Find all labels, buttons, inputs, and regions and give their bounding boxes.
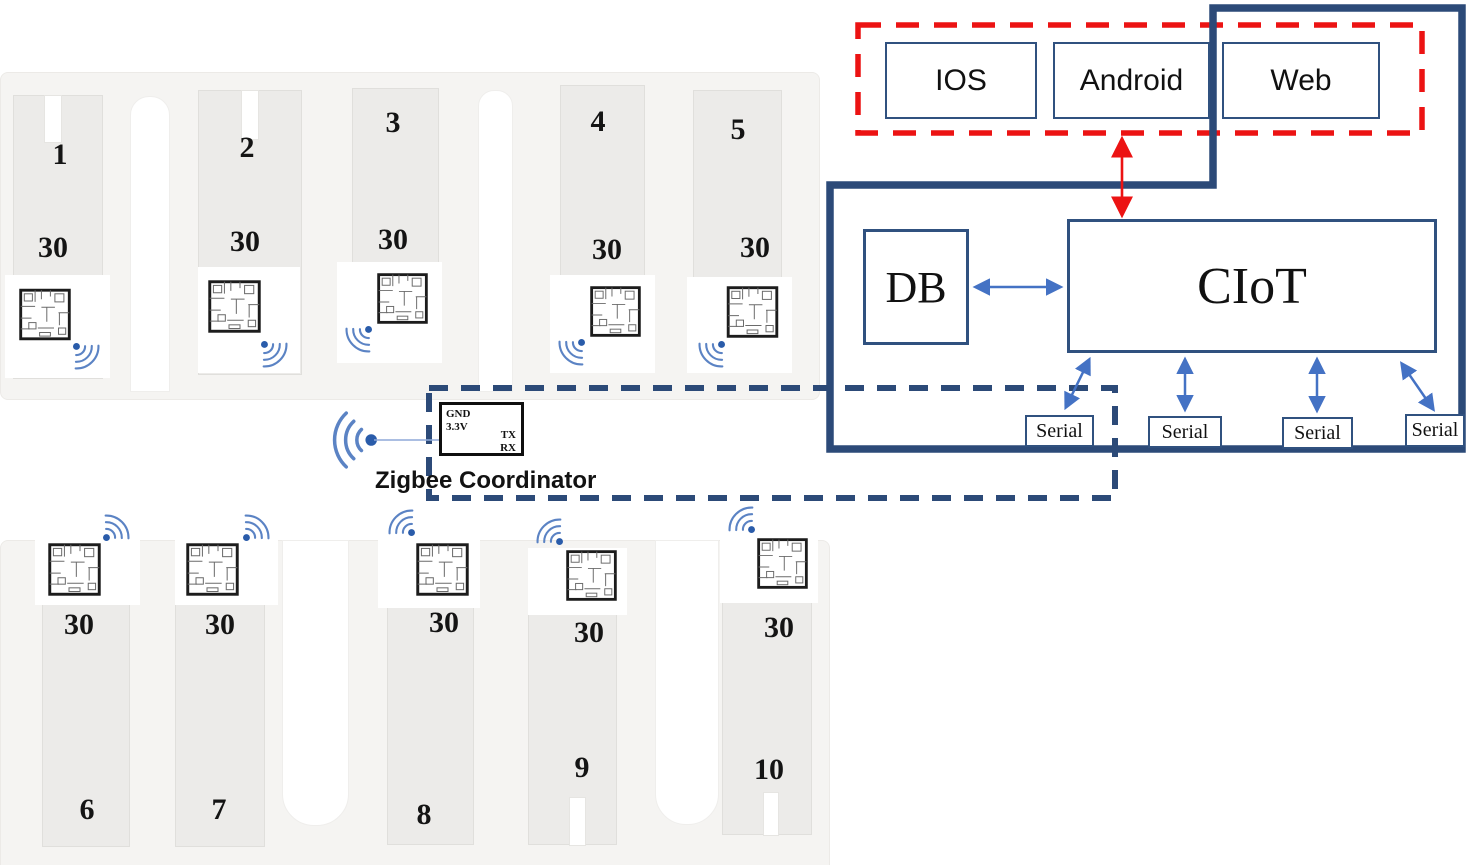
db-box: DB	[863, 229, 969, 345]
floorplan-icon	[415, 542, 470, 597]
building-8-floors: 30	[419, 605, 469, 641]
serial-label: Serial	[1294, 422, 1341, 445]
serial-box-4: Serial	[1405, 414, 1465, 447]
floorplan-icon	[588, 285, 643, 338]
building-10-number: 10	[744, 752, 794, 788]
building-4-floors: 30	[582, 232, 632, 268]
building-5-floors: 30	[730, 230, 780, 266]
building-7-number: 7	[194, 792, 244, 828]
building-2-floors: 30	[220, 224, 270, 260]
building-notch	[569, 797, 586, 846]
road	[130, 96, 170, 392]
android-box: Android	[1053, 42, 1210, 119]
wifi-signal-icon	[333, 317, 381, 365]
db-label: DB	[885, 262, 946, 313]
wifi-signal-icon	[94, 502, 142, 550]
building-notch	[44, 95, 62, 143]
serial-box-3: Serial	[1282, 417, 1353, 449]
road	[655, 540, 719, 825]
building-6-number: 6	[62, 792, 112, 828]
ciot-label: CIoT	[1197, 257, 1307, 316]
building-10-floors: 30	[754, 610, 804, 646]
building-6-floors: 30	[54, 607, 104, 643]
serial-box-1: Serial	[1025, 415, 1094, 447]
diagram-canvas: 1 30 2 30 3 30 4 30 5 30 30 6 30 7 30 8 …	[0, 0, 1477, 865]
wifi-signal-icon	[686, 332, 734, 380]
building-1-number: 1	[35, 137, 85, 173]
wifi-signal-icon	[546, 330, 594, 378]
floorplan-icon	[755, 537, 810, 590]
zigbee-coordinator-module: GND 3.3V TX RX	[439, 402, 524, 456]
web-box: Web	[1222, 42, 1380, 119]
wifi-signal-icon	[234, 502, 282, 550]
serial-label: Serial	[1412, 419, 1459, 442]
ios-label: IOS	[935, 64, 987, 98]
serial-box-2: Serial	[1148, 416, 1222, 448]
wifi-signal-icon	[524, 506, 572, 554]
pin-tx-label: TX	[501, 429, 516, 441]
floorplan-icon	[47, 542, 102, 597]
ios-box: IOS	[885, 42, 1037, 119]
building-3-number: 3	[368, 105, 418, 141]
floorplan-icon	[185, 542, 240, 597]
road	[478, 90, 513, 392]
floorplan-icon	[565, 548, 618, 603]
building-5-number: 5	[713, 112, 763, 148]
floorplan-icon	[375, 272, 430, 325]
wifi-signal-icon	[64, 334, 112, 382]
wifi-signal-icon	[304, 400, 384, 480]
serial-label: Serial	[1162, 421, 1209, 444]
pin-rx-label: RX	[500, 442, 516, 454]
floorplan-icon	[207, 278, 262, 335]
web-label: Web	[1270, 64, 1331, 98]
pin-power-label: 3.3V	[446, 421, 468, 433]
ciot-box: CIoT	[1067, 219, 1437, 353]
wifi-signal-icon	[376, 497, 424, 545]
zigbee-coordinator-label: Zigbee Coordinator	[375, 467, 596, 495]
wifi-signal-icon	[716, 494, 764, 542]
pin-gnd-label: GND	[446, 408, 470, 420]
road	[282, 540, 349, 826]
building-3-floors: 30	[368, 222, 418, 258]
building-9-floors: 30	[564, 615, 614, 651]
serial-label: Serial	[1036, 420, 1083, 443]
building-notch	[763, 792, 779, 836]
building-1-floors: 30	[28, 230, 78, 266]
building-8-number: 8	[399, 797, 449, 833]
building-4-number: 4	[573, 104, 623, 140]
android-label: Android	[1080, 64, 1183, 98]
wifi-signal-icon	[252, 332, 300, 380]
arrow-ciot-serial-1	[1066, 360, 1089, 407]
floorplan-icon	[725, 285, 780, 339]
arrow-ciot-serial-4	[1402, 364, 1433, 409]
building-7-floors: 30	[195, 607, 245, 643]
building-2-number: 2	[222, 130, 272, 166]
building-9-number: 9	[557, 750, 607, 786]
